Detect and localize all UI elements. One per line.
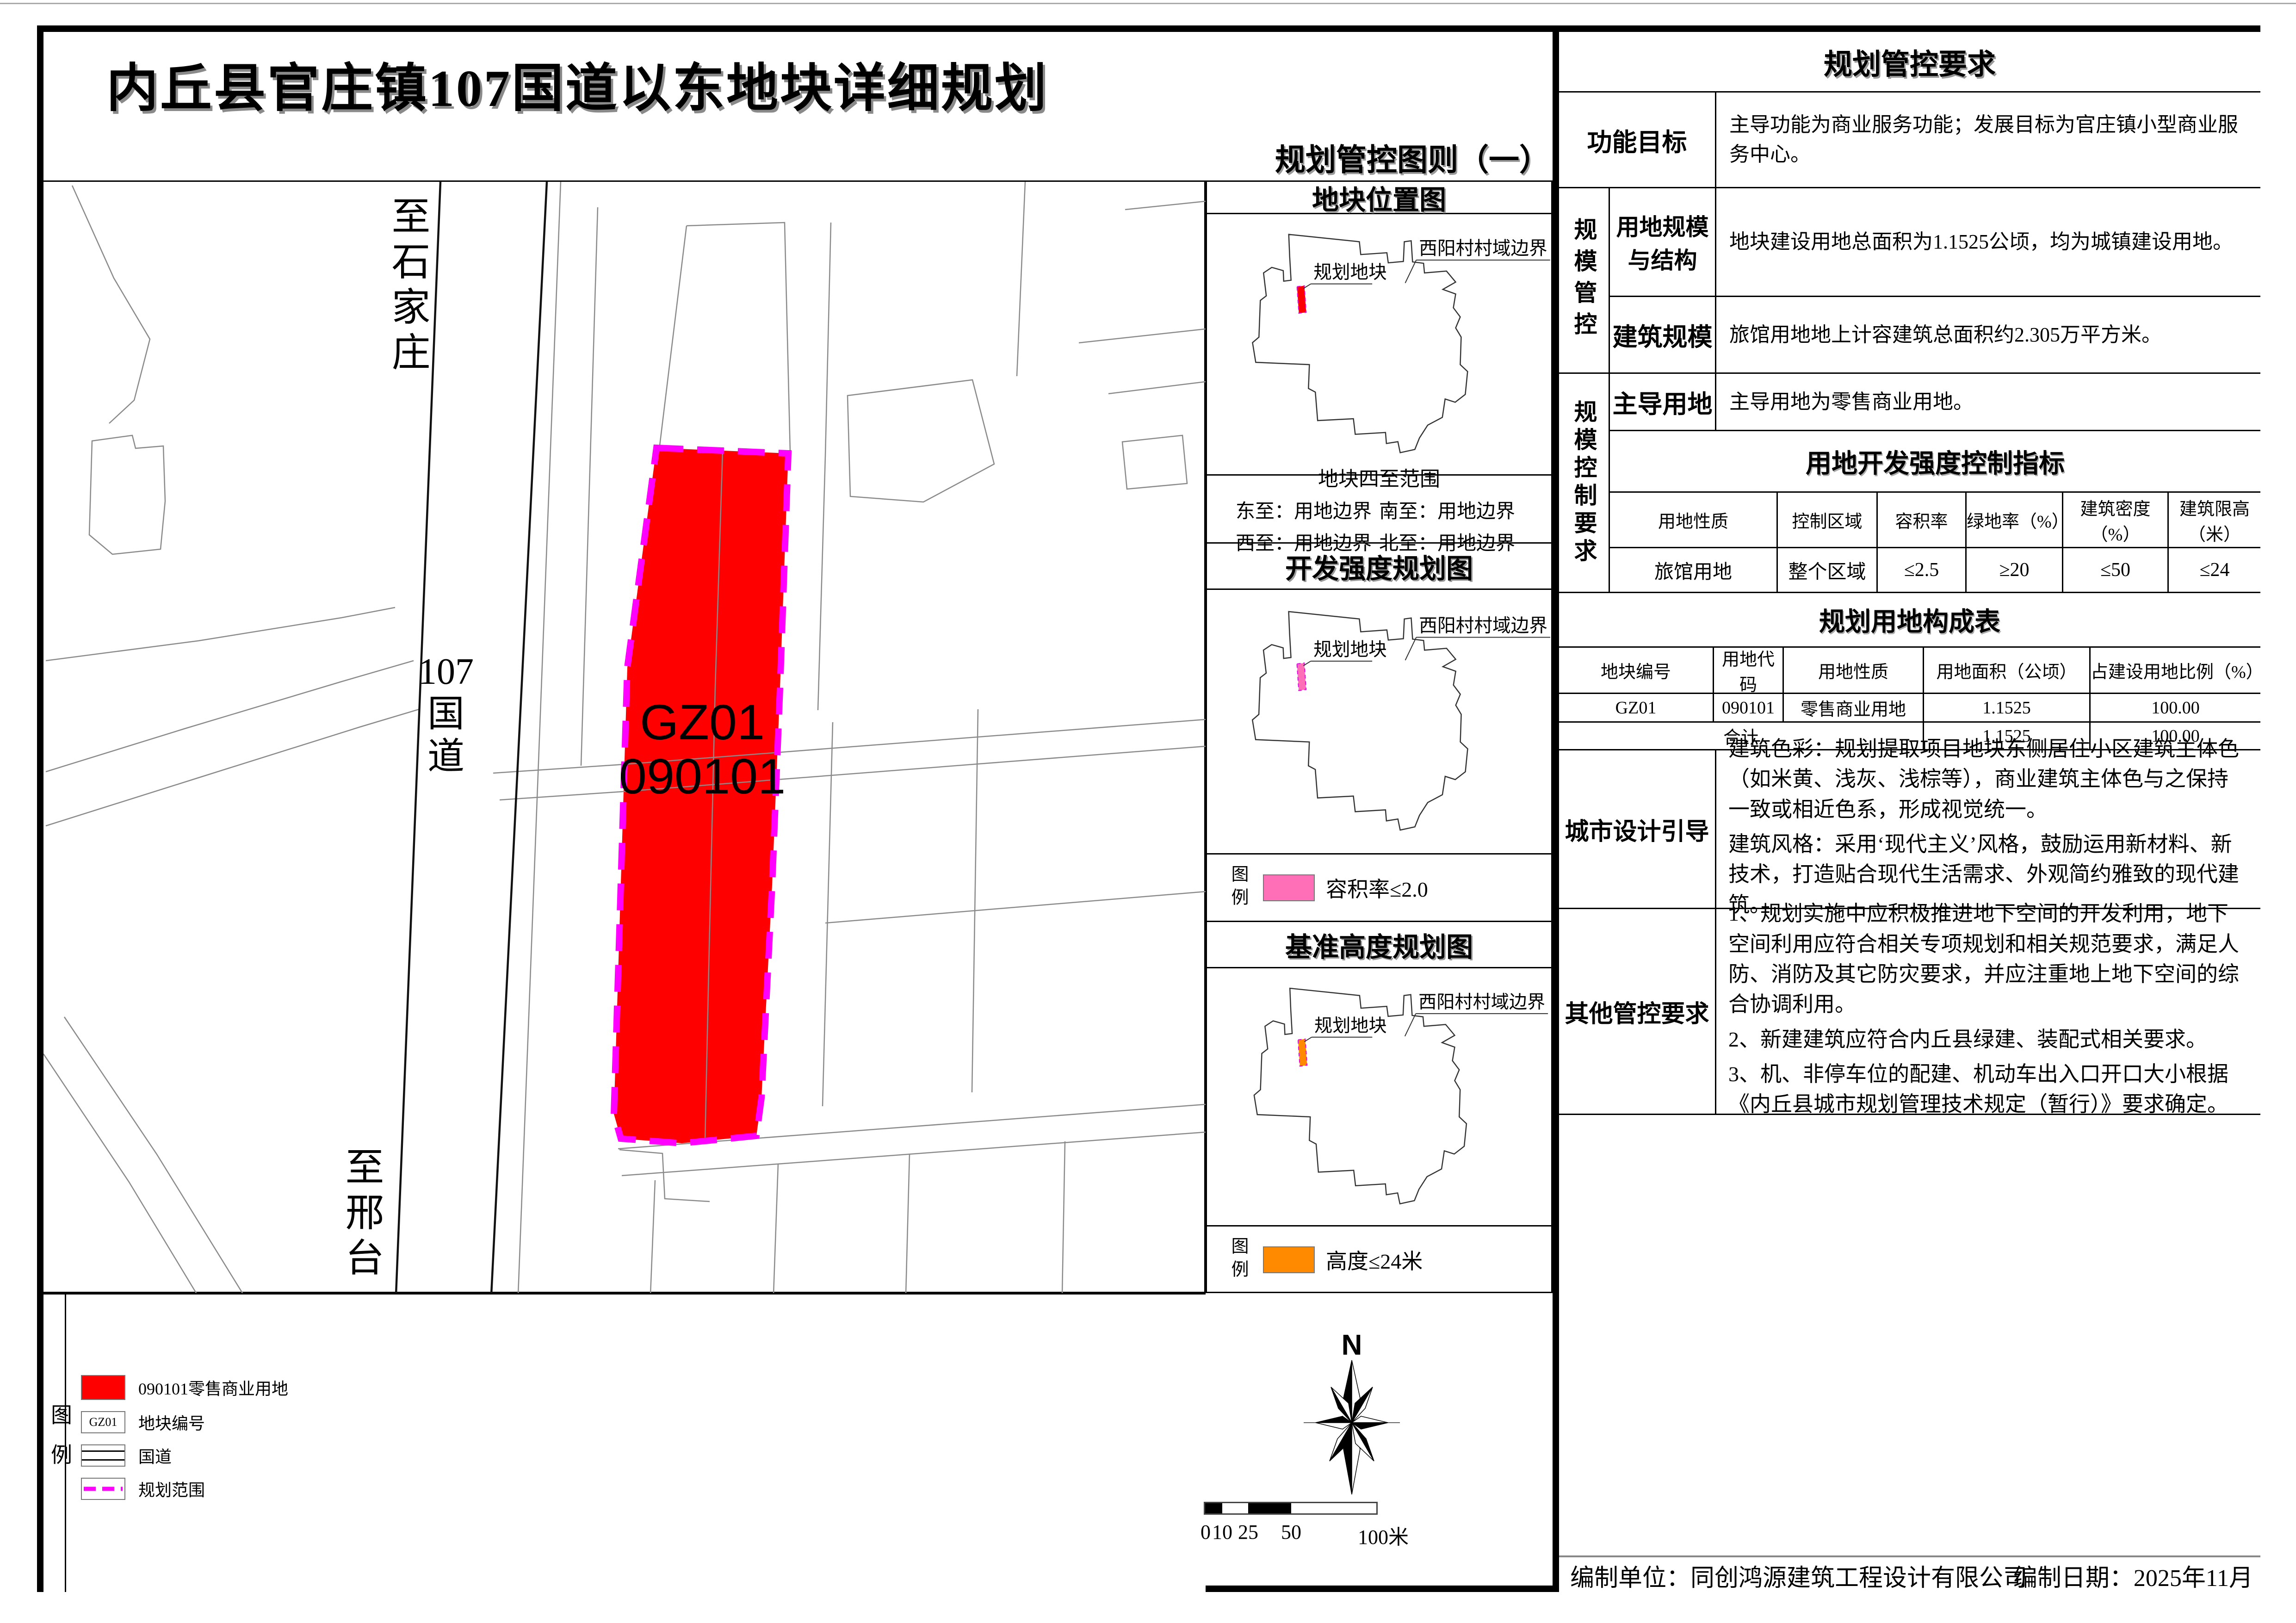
legend-item-national-road: 国道: [81, 1443, 172, 1468]
intensity-header: 绿地率（%）: [1967, 493, 2063, 548]
mini-map-2-title: 开发强度规划图: [1207, 544, 1551, 590]
page-title: 内丘县官庄镇107国道以东地块详细规划: [106, 46, 1194, 120]
urban-design-label: 城市设计引导: [1559, 750, 1716, 909]
mini-legend-text: 高度≤24米: [1326, 1245, 1423, 1275]
other-requirements-text: 1、规划实施中应积极推进地下空间的开发利用，地下空间利用应符合相关专项规划和相关…: [1716, 909, 2260, 1115]
function-goal-label: 功能目标: [1559, 93, 1716, 188]
retail-land-swatch: [81, 1375, 125, 1400]
plan-boundary-swatch: [81, 1478, 125, 1500]
extent-block: 地块四至范围 东至：用地边界 南至：用地边界 西至：用地边界 北至：用地边界: [1207, 476, 1551, 544]
road-name-number: 107: [418, 651, 474, 692]
legend-item-label: 规划范围: [138, 1477, 205, 1501]
scale-tick-100: 100米: [1358, 1520, 1409, 1550]
function-goal-text: 主导功能为商业服务功能；发展目标为官庄镇小型商业服务中心。: [1716, 93, 2260, 188]
road-name-char2: 道: [427, 737, 464, 777]
land-scale-label: 用地规模与结构: [1610, 188, 1716, 297]
north-label: N: [1342, 1329, 1362, 1361]
mini-boundary-label: 西阳村村域边界: [1419, 616, 1547, 636]
land-scale-text: 地块建设用地总面积为1.1525公顷，均为城镇建设用地。: [1716, 188, 2260, 297]
mini-map-column: 地块位置图 规划地块 西阳村村域边界 地块四至范围 东至：用地边界 南至：用地边…: [1206, 180, 1553, 1293]
mini-map-1: 规划地块 西阳村村域边界: [1207, 214, 1551, 476]
national-road-swatch: [81, 1444, 125, 1467]
mini-map-2: 规划地块 西阳村村域边界: [1207, 590, 1551, 855]
intensity-value: 旅馆用地: [1610, 548, 1778, 593]
mini-map-3: 规划地块 西阳村村域边界: [1207, 968, 1551, 1227]
intensity-header: 容积率: [1878, 493, 1967, 548]
dominant-use-text: 主导用地为零售商业用地。: [1716, 374, 2260, 431]
scale-group-label: 规模管控: [1559, 188, 1610, 374]
plot-code-label: GZ01: [640, 694, 765, 750]
dominant-use-label: 主导用地: [1610, 374, 1716, 431]
scale-bar-segments: [1204, 1502, 1378, 1515]
composition-header: 地块编号: [1559, 648, 1714, 694]
mini-boundary-label: 西阳村村域边界: [1418, 992, 1545, 1012]
main-plan-map: GZ01 090101 至石家庄 107 国 道 至邢台: [43, 180, 1206, 1293]
road-destination-north: 至石家庄: [379, 196, 435, 473]
road-destination-south: 至邢台: [333, 1146, 389, 1295]
mini-map-2-legend: 图例 容积率≤2.0: [1207, 855, 1551, 922]
legend-item-retail: 090101零售商业用地: [81, 1375, 288, 1400]
composition-cell: 100.00: [2091, 694, 2260, 723]
urban-design-text: 建筑色彩：规划提取项目地块东侧居住小区建筑主体色（如米黄、浅灰、浅棕等），商业建…: [1716, 750, 2260, 909]
legend-item-plot-code: GZ01 地块编号: [81, 1410, 205, 1434]
intensity-value: ≥20: [1967, 548, 2063, 593]
scale-bar: 0 10 25 50 100米: [1204, 1502, 1398, 1562]
intensity-header: 建筑密度（%）: [2063, 493, 2169, 548]
other-requirement-item: 3、机、非停车位的配建、机动车出入口开口大小根据《内丘县城市规划管理技术规定（暂…: [1728, 1059, 2248, 1120]
intensity-value: ≤24: [2169, 548, 2260, 593]
composition-cell: 1.1525: [1924, 694, 2091, 723]
scale-tick-25: 25: [1238, 1520, 1258, 1544]
title-block-row: 编制单位：同创鸿源建筑工程设计有限公司 编制日期：2025年11月: [1559, 1555, 2260, 1592]
prepared-by: 编制单位：同创鸿源建筑工程设计有限公司: [1570, 1557, 2027, 1594]
control-requirements-table: 规划管控要求 功能目标 主导功能为商业服务功能；发展目标为官庄镇小型商业服务中心…: [1559, 32, 2260, 1592]
scale-tick-50: 50: [1281, 1520, 1301, 1544]
mini-boundary-label: 西阳村村域边界: [1419, 238, 1547, 259]
extent-south: 南至：用地边界: [1379, 496, 1522, 524]
main-map-canvas: GZ01 090101: [43, 182, 1206, 1295]
mini-plot-label: 规划地块: [1313, 262, 1387, 283]
scan-edge-line: [0, 3, 2296, 4]
composition-header: 用地面积（公顷）: [1924, 648, 2091, 694]
mini-legend-title: 图例: [1225, 1237, 1251, 1283]
legend-item-plan-boundary: 规划范围: [81, 1477, 205, 1501]
other-requirements-label: 其他管控要求: [1559, 909, 1716, 1115]
composition-cell: GZ01: [1559, 694, 1714, 723]
road-name-107: 107 国 道: [414, 651, 478, 777]
mini-legend-text: 容积率≤2.0: [1326, 873, 1428, 903]
legend-item-label: 国道: [138, 1443, 172, 1468]
intensity-header: 用地性质: [1610, 493, 1778, 548]
plot-use-code-label: 090101: [619, 748, 786, 804]
height-swatch: [1263, 1246, 1315, 1273]
building-scale-text: 旅馆用地地上计容建筑总面积约2.305万平方米。: [1716, 297, 2260, 374]
far-swatch: [1263, 874, 1315, 901]
mini-map-3-title: 基准高度规划图: [1207, 922, 1551, 968]
building-scale-label: 建筑规模: [1610, 297, 1716, 374]
mini-map-1-title: 地块位置图: [1207, 182, 1551, 214]
control-table-title: 规划管控要求: [1559, 32, 2260, 93]
road-name-char1: 国: [427, 694, 464, 735]
extent-title: 地块四至范围: [1318, 462, 1440, 492]
mini-plot-label: 规划地块: [1314, 1016, 1387, 1036]
composition-cell: 零售商业用地: [1784, 694, 1924, 723]
column-divider: [1553, 32, 1559, 1592]
composition-header: 占建设用地比例（%）: [2091, 648, 2260, 694]
other-requirement-item: 2、新建建筑应符合内丘县绿建、装配式相关要求。: [1728, 1024, 2207, 1054]
intensity-value: 整个区域: [1778, 548, 1878, 593]
legend-title: 图例: [44, 1383, 65, 1504]
mini-legend-title: 图例: [1225, 865, 1251, 911]
sheet-subtitle: 规划管控图则（一）: [1206, 135, 1550, 175]
mini-plot-label: 规划地块: [1313, 639, 1387, 660]
intensity-value: ≤50: [2063, 548, 2169, 593]
scale-tick-10: 10: [1212, 1520, 1232, 1544]
intensity-header: 控制区域: [1778, 493, 1878, 548]
intensity-table-title: 用地开发强度控制指标: [1610, 431, 2260, 493]
composition-header: 用地代码: [1714, 648, 1784, 694]
intensity-header: 建筑限高（米）: [2169, 493, 2260, 548]
urban-design-paragraph: 建筑色彩：规划提取项目地块东侧居住小区建筑主体色（如米黄、浅灰、浅棕等），商业建…: [1728, 734, 2248, 824]
composition-header: 用地性质: [1784, 648, 1924, 694]
other-requirement-item: 1、规划实施中应积极推进地下空间的开发利用，地下空间利用应符合相关专项规划和相关…: [1728, 898, 2248, 1019]
compass-rose-icon: N: [1300, 1328, 1404, 1504]
plot-code-swatch: GZ01: [81, 1411, 125, 1433]
legend-item-label: 090101零售商业用地: [138, 1375, 288, 1400]
map-legend-panel: [43, 1293, 1206, 1592]
legend-item-label: 地块编号: [138, 1410, 205, 1434]
composition-cell: 090101: [1714, 694, 1784, 723]
scale-tick-0: 0: [1201, 1520, 1211, 1544]
control-group-label: 规模控制要求: [1559, 374, 1610, 593]
prepared-date: 编制日期：2025年11月: [2013, 1557, 2253, 1594]
mini-map-3-legend: 图例 高度≤24米: [1207, 1227, 1551, 1293]
intensity-value: ≤2.5: [1878, 548, 1967, 593]
plan-sheet: 内丘县官庄镇107国道以东地块详细规划 规划管控图则（一）: [0, 0, 2296, 1623]
extent-east: 东至：用地边界: [1236, 496, 1379, 524]
composition-table-title: 规划用地构成表: [1559, 593, 2260, 648]
